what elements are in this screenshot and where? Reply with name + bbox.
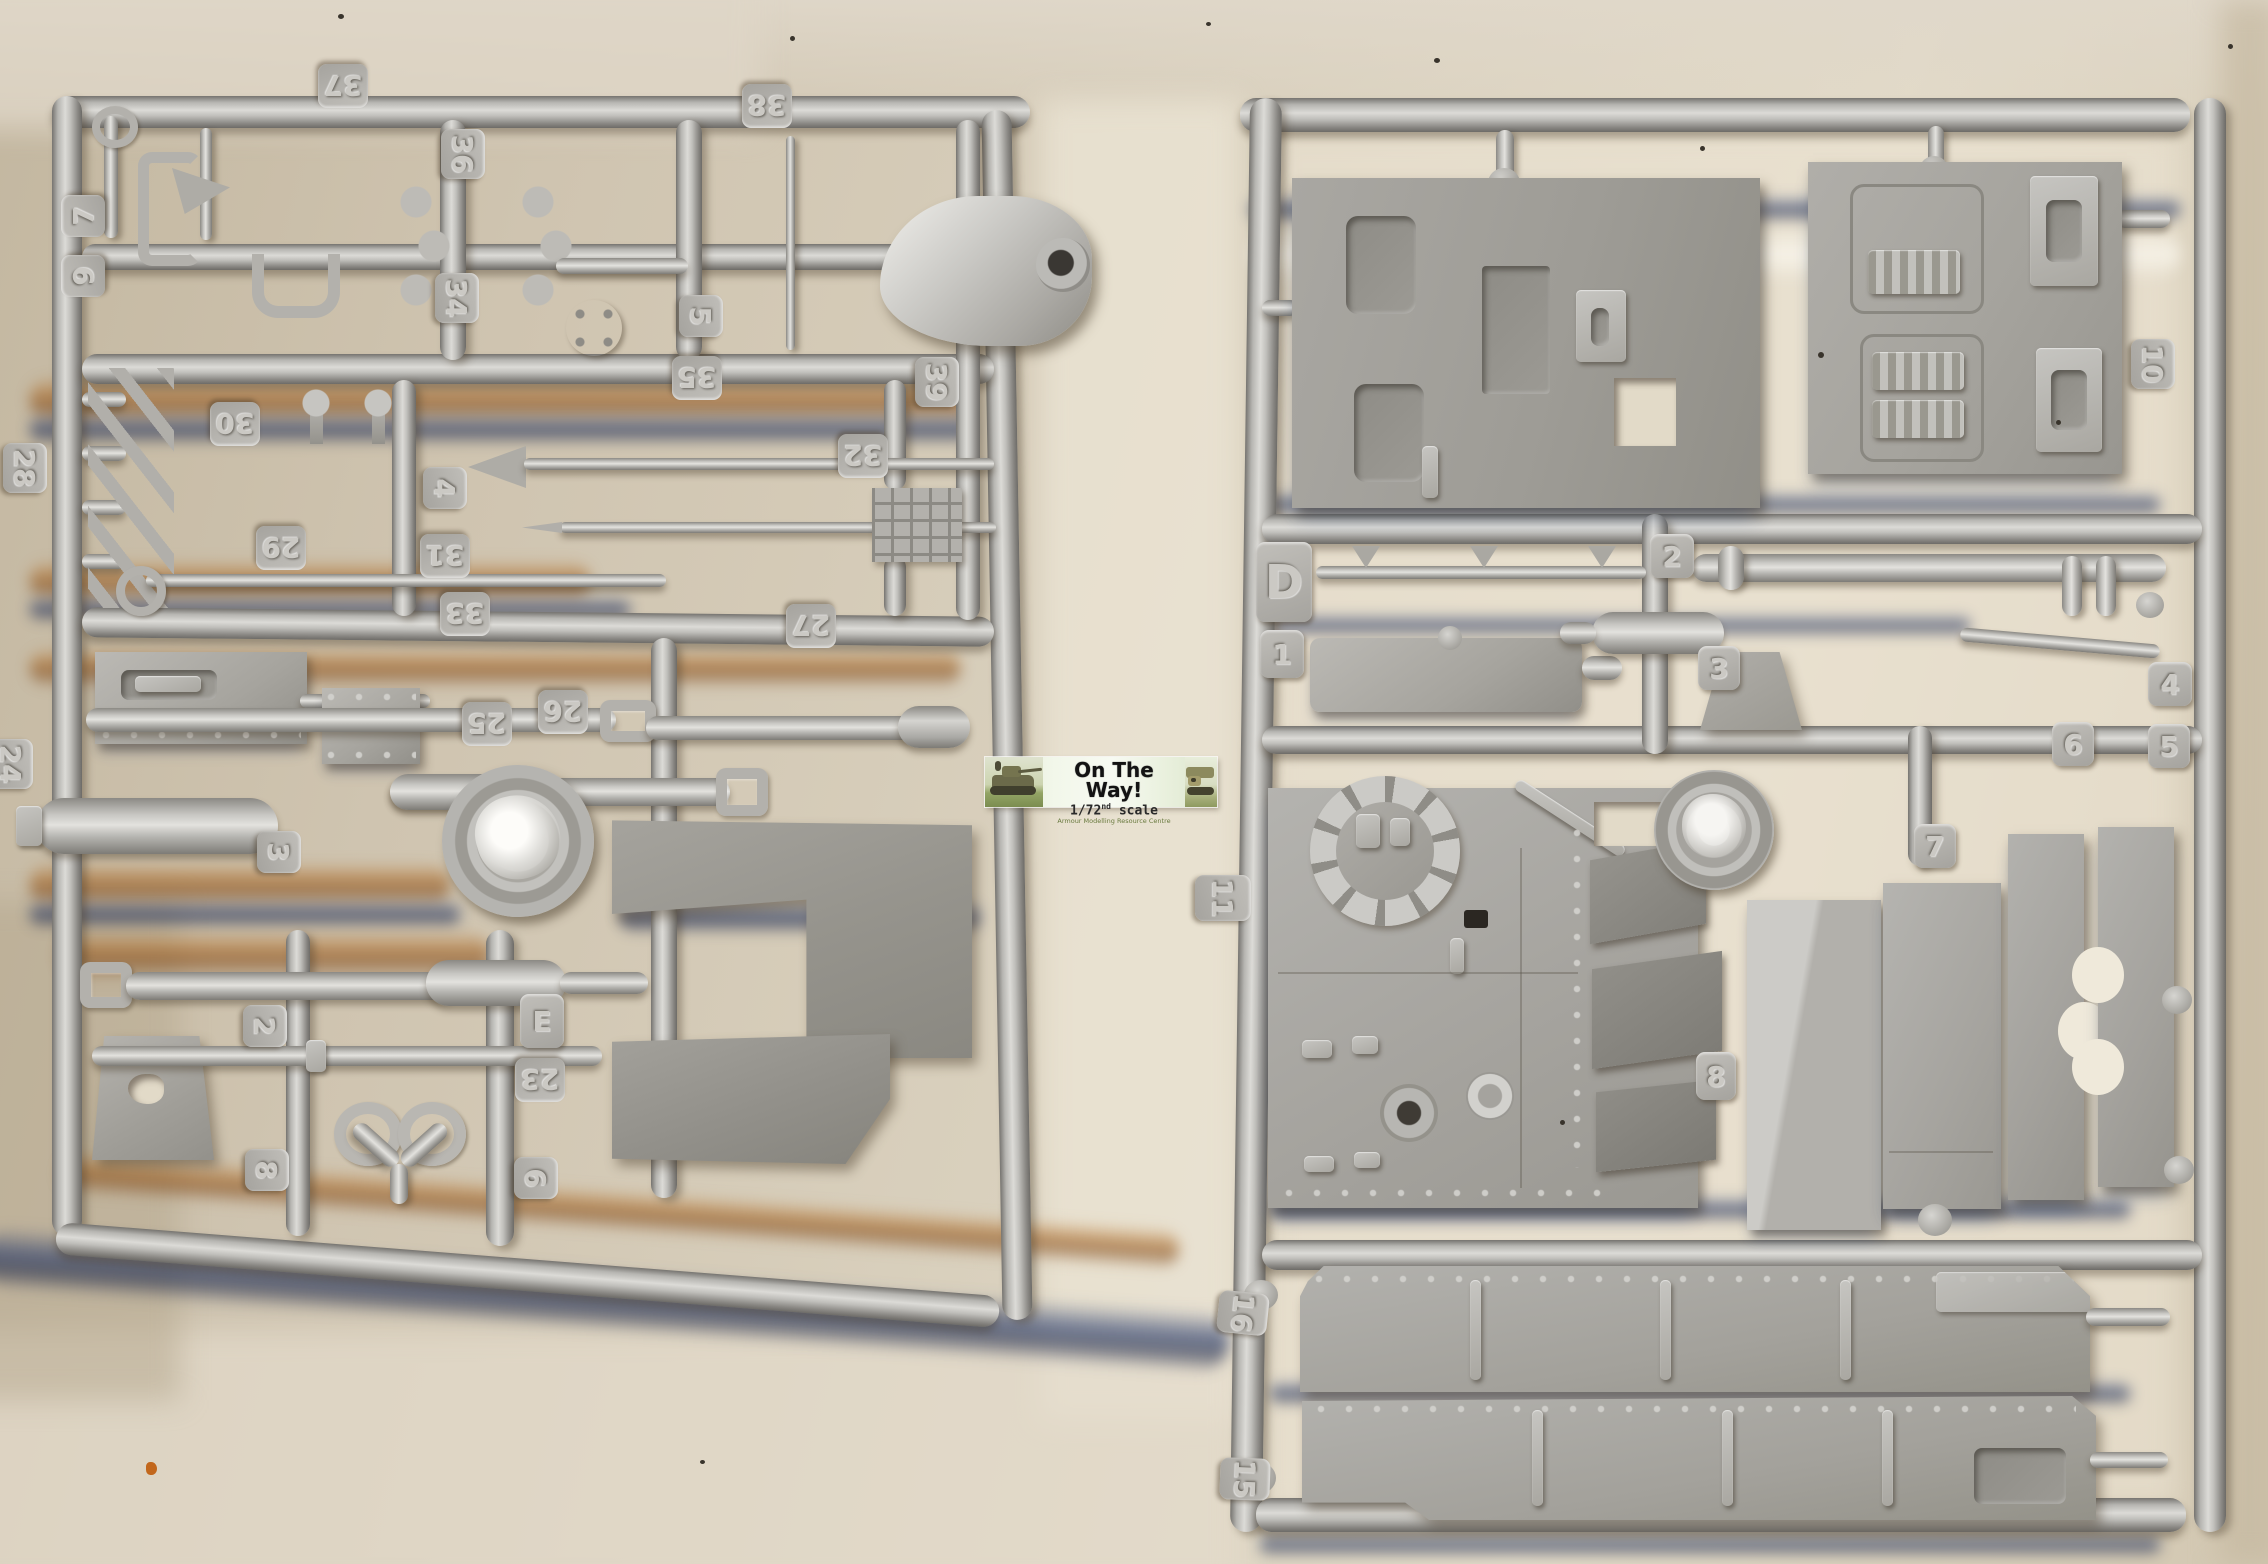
background-bottom-light (0, 1330, 1240, 1564)
part-number-tag: 15 (1219, 1457, 1270, 1501)
road-wheel-part (442, 765, 594, 917)
part-number-tag: 11 (1195, 875, 1251, 921)
mesh-grille-part (872, 488, 962, 562)
panel-rib (1470, 1280, 1481, 1380)
hull-port-ring (1380, 1084, 1438, 1142)
panel-recess (1974, 1448, 2066, 1504)
halftrack-window (1191, 778, 1196, 782)
dust-speck (1818, 352, 1824, 358)
hull-port-ring (1466, 1072, 1514, 1120)
valve-part (360, 388, 396, 446)
rivet-row (326, 750, 416, 760)
part-number-tag: 24 (0, 739, 33, 789)
part-number-tag: 25 (462, 702, 512, 746)
panel-rib (1660, 1280, 1671, 1380)
armor-plate-lower (612, 1034, 890, 1164)
part-number-tag: 2 (1650, 534, 1694, 578)
part-number-tag: 31 (420, 534, 470, 578)
halftrack-tracks (1187, 787, 1214, 795)
gate-ball (2136, 592, 2164, 618)
rail-notch (2072, 1039, 2124, 1095)
u-bracket-part (252, 254, 340, 318)
gun-barrel-part (86, 708, 616, 732)
halftrack-photo-thumbnail (1185, 757, 1217, 807)
dust-speck (790, 36, 795, 41)
grille-vent (1868, 250, 1960, 294)
part-number-tag: 9 (61, 255, 105, 297)
part-number-tag: 23 (515, 1058, 565, 1102)
barrel-tip (1560, 622, 1596, 644)
panel-rib (1532, 1410, 1543, 1506)
gun-barrel-part (126, 972, 456, 1000)
hatch-recess (2046, 200, 2082, 262)
hatch-handle (1591, 308, 1609, 346)
slab-seam (1889, 1151, 1993, 1153)
sprue-runner (884, 380, 906, 490)
part-number-tag: 36 (441, 129, 485, 179)
tool-clamp-part (520, 184, 574, 308)
cupola-ring (1310, 776, 1460, 926)
panel-recess (1346, 216, 1416, 314)
clamp-fitting (1352, 1036, 1378, 1054)
tank-tracks (990, 786, 1036, 795)
background-right-edge (2220, 0, 2268, 1564)
panel-plate (1936, 1272, 2106, 1312)
part-number-tag: 35 (672, 356, 722, 400)
hull-side-surface (1302, 1396, 2096, 1520)
clamp-fitting (1302, 1040, 1332, 1058)
muzzle-brake-part (898, 706, 970, 748)
barrel-collar (1718, 546, 1744, 590)
valve-part (298, 388, 334, 446)
engine-deck-panel-part (1808, 162, 2122, 474)
armor-plate-surface (612, 818, 972, 1058)
part-number-tag: 1 (1260, 630, 1304, 678)
rod-part (556, 258, 688, 274)
sprue-runner (82, 354, 994, 384)
drive-wheel-part (1654, 770, 1774, 890)
watermark-text-block: On The Way! 1/72nd scale Armour Modellin… (1043, 757, 1185, 807)
notched-rail-part (2098, 827, 2174, 1187)
dust-speck (700, 1460, 705, 1464)
watermark-banner: On The Way! 1/72nd scale Armour Modellin… (985, 757, 1217, 807)
small-cylinder-part (2096, 556, 2116, 616)
barrel-collar (306, 1040, 326, 1072)
part-letter-tag: E (520, 994, 564, 1048)
dust-speck (2056, 420, 2061, 425)
part-number-tag: 3 (1698, 646, 1740, 690)
antenna-rod-part (786, 136, 795, 350)
hub-flange-part (566, 300, 622, 356)
sprue-runner (52, 96, 1030, 128)
part-number-tag: 8 (245, 1149, 289, 1191)
photo-canvas: 37 38 36 7 9 34 5 35 30 4 29 31 33 39 32… (0, 0, 2268, 1564)
rivet-row (326, 692, 416, 702)
tank-photo-thumbnail (985, 757, 1043, 807)
orange-speck (146, 1462, 157, 1475)
part-number-tag: 8 (1696, 1052, 1736, 1100)
scale-unit: scale (1119, 803, 1158, 818)
clamp-part (138, 152, 202, 266)
flat-slab-part (1883, 883, 2001, 1209)
panel-seam (1520, 848, 1522, 1188)
gate-stub (2086, 1308, 2170, 1326)
rod-tip (522, 522, 562, 533)
gate-stub (2090, 1452, 2168, 1468)
dust-speck (1700, 146, 1705, 151)
muzzle-opening (1036, 238, 1090, 292)
barrel-tip (560, 972, 648, 994)
clamp-fitting (1304, 1156, 1334, 1172)
scale-value: 1/72 (1070, 803, 1101, 818)
muffler-part (36, 798, 278, 854)
barrel-shackle (80, 962, 132, 1008)
wheel-hub-shine (467, 786, 570, 889)
periscope-block (1356, 814, 1380, 848)
box-knob (1438, 626, 1462, 650)
panel-hatch (2036, 348, 2102, 452)
gun-mantlet-part (880, 196, 1092, 346)
barrel-bracket (716, 768, 768, 816)
part-number-tag: 5 (2148, 724, 2190, 768)
part-number-tag: 29 (256, 526, 306, 570)
wheel-hub-shine (1682, 794, 1746, 858)
stowage-box-part (1310, 638, 1582, 712)
part-number-tag: 6 (514, 1157, 558, 1199)
stowage-slab-part (1747, 900, 1881, 1230)
panel-seam (1278, 972, 1578, 974)
tank-figure (995, 761, 1001, 771)
panel-recess (1482, 266, 1550, 394)
armor-plate-large (612, 818, 972, 1058)
grille-vent (1872, 400, 1964, 438)
part-number-tag: 5 (679, 295, 723, 337)
sprue-runner (82, 607, 994, 647)
part-number-tag: 3 (257, 831, 301, 873)
scale-ordinal: nd (1101, 802, 1111, 811)
funnel-part (468, 446, 526, 488)
muffler-cap (16, 806, 42, 846)
gate-ball (2162, 986, 2192, 1014)
hull-panel-part (1292, 178, 1760, 508)
vision-slot (1464, 910, 1488, 928)
part-number-tag: 34 (435, 273, 479, 323)
part-number-tag: 37 (318, 64, 368, 108)
shield-cutout (128, 1074, 164, 1104)
part-number-tag: 28 (3, 443, 47, 493)
gate-ball (1918, 1204, 1952, 1236)
gate-stub (1582, 656, 1622, 680)
v-linkage-part (334, 1102, 466, 1208)
hatch-outline (1850, 184, 1984, 314)
panel-rib (1422, 446, 1438, 498)
light-streak (1260, 1532, 2160, 1556)
tow-rod-part (146, 574, 666, 587)
panel-hatch (2030, 176, 2098, 286)
hull-side-panel-part (1302, 1396, 2096, 1520)
grille-vent (1872, 352, 1964, 390)
gate-stub (2116, 210, 2170, 228)
dust-speck (2228, 44, 2233, 49)
part-number-tag: 30 (210, 402, 260, 446)
gun-barrel-part (1692, 554, 2166, 582)
tank-gun (1018, 768, 1042, 773)
watermark-title: On The Way! (1043, 760, 1185, 800)
rivet-row (1284, 1188, 1614, 1198)
panel-hatch (1576, 290, 1626, 362)
light-streak (30, 900, 460, 928)
part-number-tag: 39 (915, 357, 959, 407)
armor-plate-surface (612, 1034, 890, 1164)
clamp-fitting (1354, 1152, 1380, 1168)
sprue-runner (2194, 98, 2226, 1532)
cupola-interior (1336, 802, 1434, 900)
part-number-tag: 27 (786, 604, 836, 648)
panel-rib (1722, 1410, 1733, 1506)
hull-side-surface (1300, 1266, 2090, 1392)
panel-opening (1614, 378, 1676, 446)
small-cylinder-part (2062, 556, 2082, 616)
rail-notch (2072, 947, 2124, 1003)
sprue-letter-tag: D (1256, 542, 1312, 622)
part-number-tag: 4 (423, 467, 467, 509)
rod-part (524, 458, 994, 470)
periscope-block (1390, 818, 1410, 846)
hook-part (92, 106, 138, 148)
part-number-tag: 26 (538, 690, 588, 734)
gate-ball (2164, 1156, 2194, 1184)
part-number-tag: 7 (1914, 824, 1956, 868)
sprue-runner (884, 556, 906, 616)
dust-speck (1434, 58, 1440, 63)
hull-side-panel-part (1300, 1266, 2090, 1392)
panel-rib (1882, 1410, 1893, 1506)
plate-slot-insert (135, 676, 201, 692)
part-number-tag: 4 (2148, 662, 2192, 706)
fitting-block (1450, 938, 1464, 974)
dust-speck (338, 14, 344, 19)
part-number-tag: 10 (2131, 339, 2175, 389)
tow-hook-ring (116, 566, 166, 616)
part-number-tag: 32 (838, 434, 888, 478)
rivet-row (1316, 1404, 2076, 1414)
linkage-stem (390, 1164, 408, 1204)
panel-rib (1840, 1280, 1851, 1380)
rivet-column (1572, 828, 1582, 1168)
part-number-tag: 38 (742, 84, 792, 128)
part-number-tag: 33 (440, 592, 490, 636)
part-number-tag: 2 (243, 1005, 287, 1047)
part-number-tag: 7 (61, 195, 105, 237)
notched-rail-part (2008, 834, 2084, 1200)
watermark-scale: 1/72nd scale (1043, 800, 1185, 817)
sprue-runner (1240, 98, 2190, 132)
rod-part (1316, 566, 1646, 579)
dust-speck (1206, 22, 1211, 26)
sprue-runner (1262, 514, 2202, 544)
superstructure-panel-part (1268, 788, 1698, 1208)
dust-speck (1560, 1120, 1565, 1125)
watermark-credit: Armour Modelling Resource Centre (1043, 817, 1185, 825)
panel-recess (1354, 384, 1424, 482)
part-number-tag: 6 (2052, 722, 2094, 766)
part-number-tag: 16 (1216, 1290, 1270, 1337)
